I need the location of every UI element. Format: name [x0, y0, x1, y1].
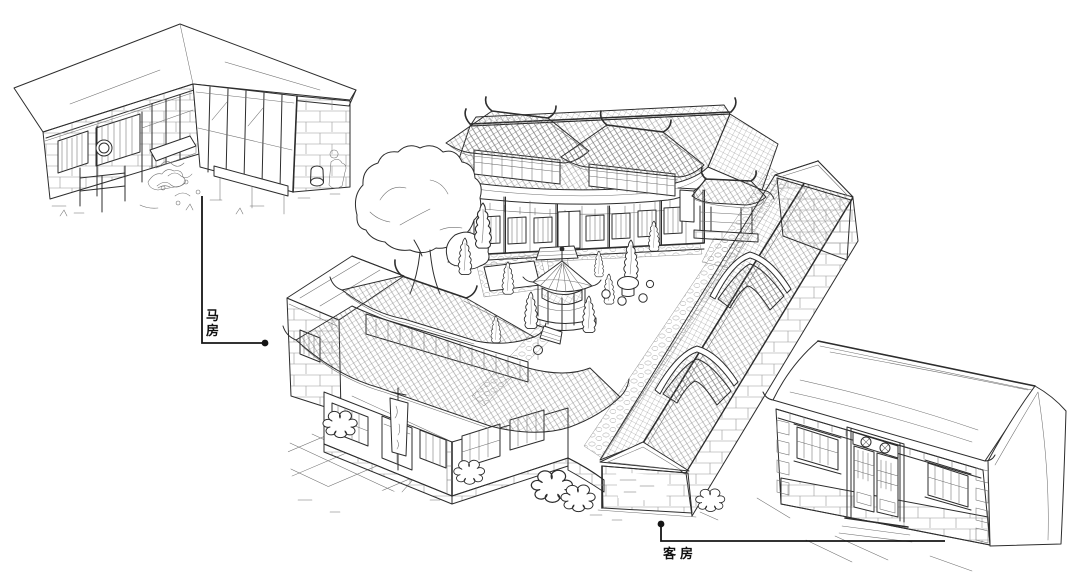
hay-scatter [157, 161, 192, 196]
stable-end-room [293, 96, 350, 192]
illustration-page: 马房 客房 [0, 0, 1080, 575]
stable-leader-dot [262, 340, 269, 347]
architectural-illustration [0, 0, 1080, 575]
bucket [311, 178, 324, 186]
main-hall-steps [536, 246, 578, 260]
stable-label: 马房 [204, 308, 221, 338]
stable-right-wing [193, 84, 297, 214]
guesthouse-detail-drawing [757, 341, 1066, 571]
gate-pillar [680, 190, 694, 222]
stable-detail-drawing [14, 24, 356, 216]
hanging-ring [96, 140, 112, 156]
guesthouse-label: 客房 [663, 543, 697, 562]
